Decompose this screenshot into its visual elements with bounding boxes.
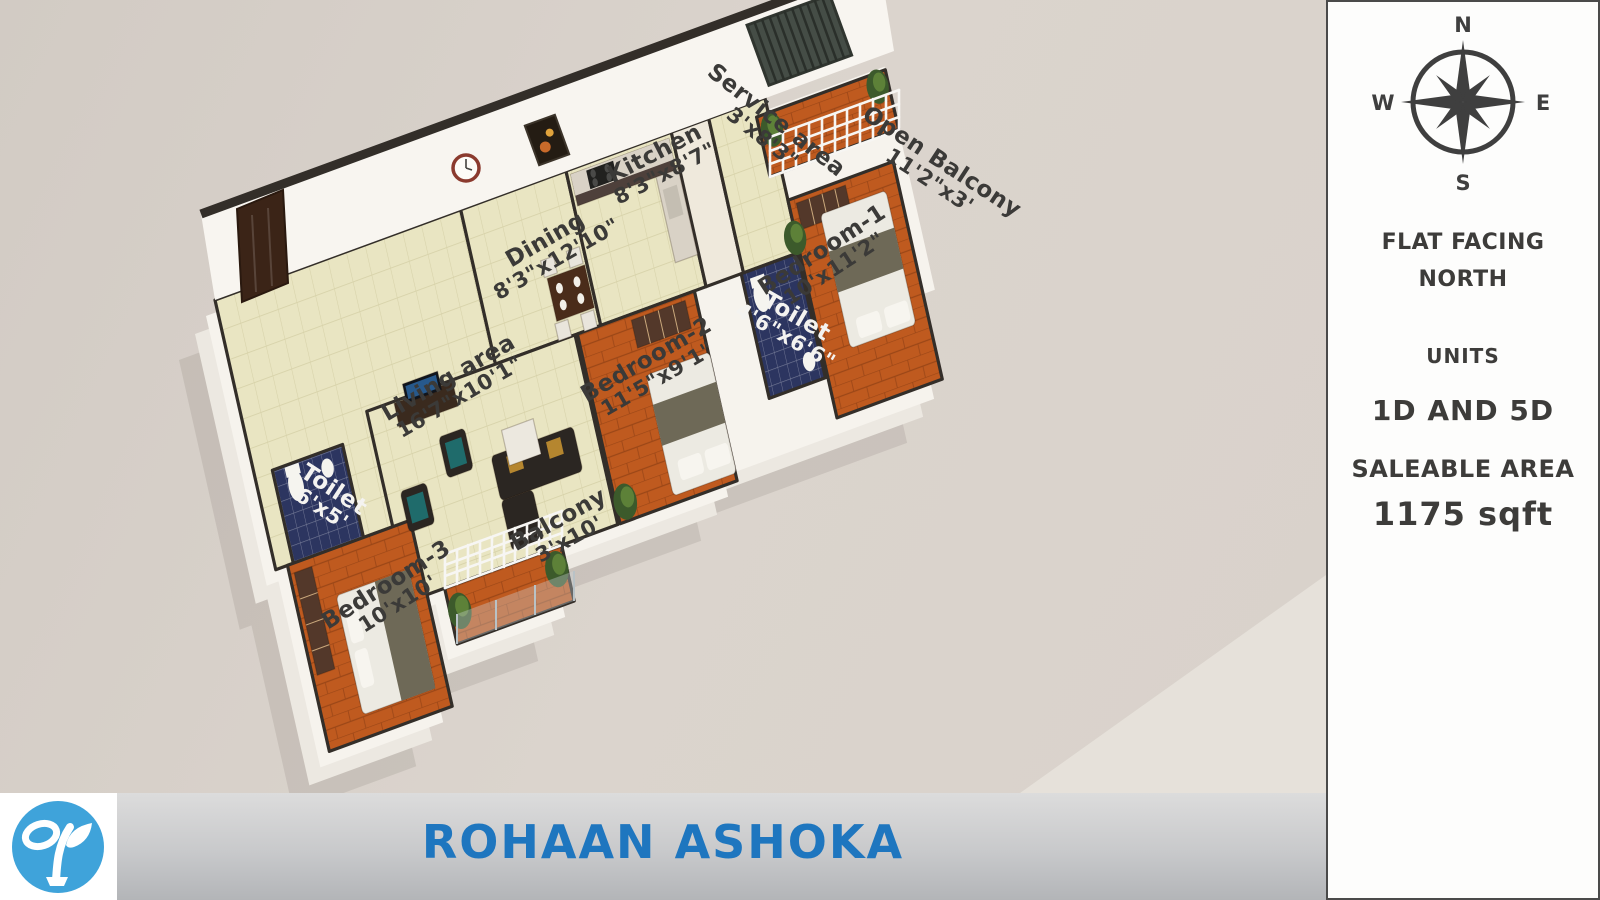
floor-plan-render: Kitchen 8'3"x8'7" Service area 3'x8'3" D… xyxy=(0,0,1326,900)
saleable-area-label: SALEABLE AREA xyxy=(1328,455,1598,483)
isometric-plan: Kitchen 8'3"x8'7" Service area 3'x8'3" D… xyxy=(179,0,1026,816)
units-label: UNITS xyxy=(1328,344,1598,368)
leaf-logo-icon xyxy=(0,793,117,900)
flat-facing-text: FLAT FACING NORTH xyxy=(1328,224,1598,298)
compass-north-label: N xyxy=(1454,13,1472,37)
footer-bar: ROHAAN ASHOKA xyxy=(0,793,1326,900)
compass-east-label: E xyxy=(1536,91,1550,115)
compass-south-label: S xyxy=(1455,171,1470,195)
compass-west-label: W xyxy=(1371,91,1394,115)
wall-clock xyxy=(453,155,479,181)
compass-rose-icon: N E S W xyxy=(1328,2,1598,202)
units-value: 1D AND 5D xyxy=(1328,394,1598,427)
builder-logo xyxy=(0,793,117,900)
info-sidebar: N E S W FLAT FACING NORTH UNITS 1D AND 5… xyxy=(1326,0,1600,900)
screenshot-root: Kitchen 8'3"x8'7" Service area 3'x8'3" D… xyxy=(0,0,1600,900)
project-title: ROHAAN ASHOKA xyxy=(0,815,1326,869)
ground-plane-highlight xyxy=(1020,575,1326,793)
dining-chair xyxy=(581,310,598,331)
entrance-door xyxy=(237,190,288,302)
dining-chair xyxy=(555,319,572,340)
saleable-area-value: 1175 sqft xyxy=(1328,495,1598,533)
